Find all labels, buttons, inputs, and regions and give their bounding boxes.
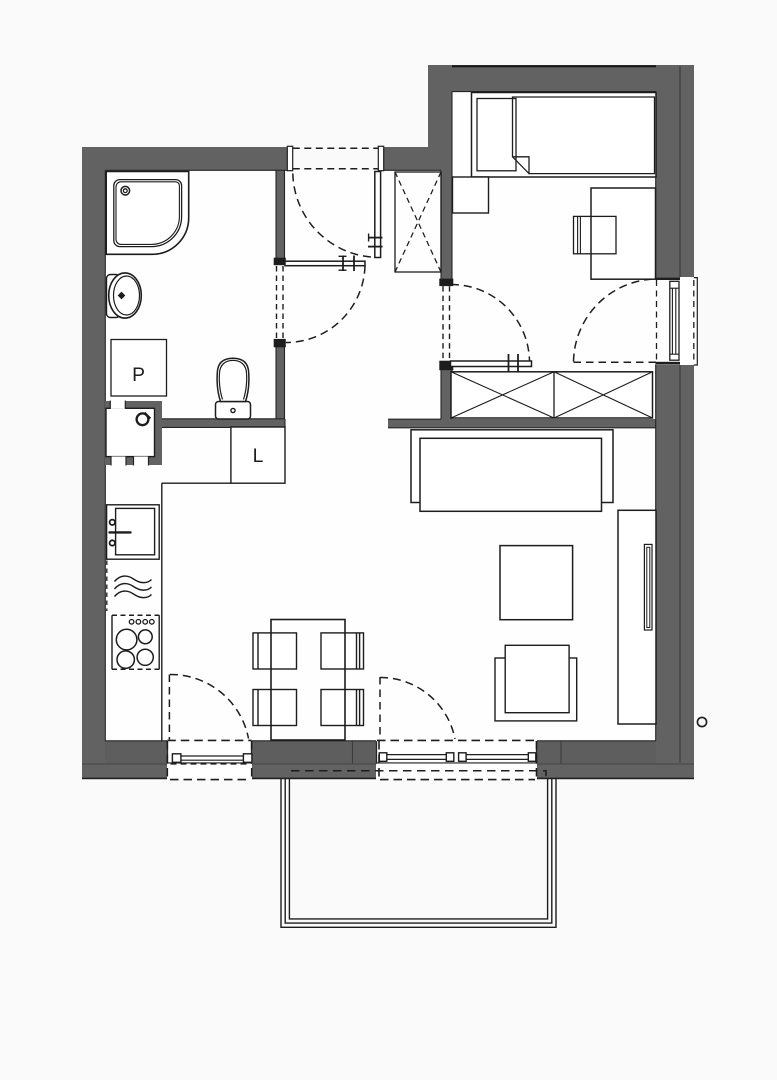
svg-text:L: L	[253, 446, 264, 467]
svg-text:P: P	[132, 365, 145, 386]
